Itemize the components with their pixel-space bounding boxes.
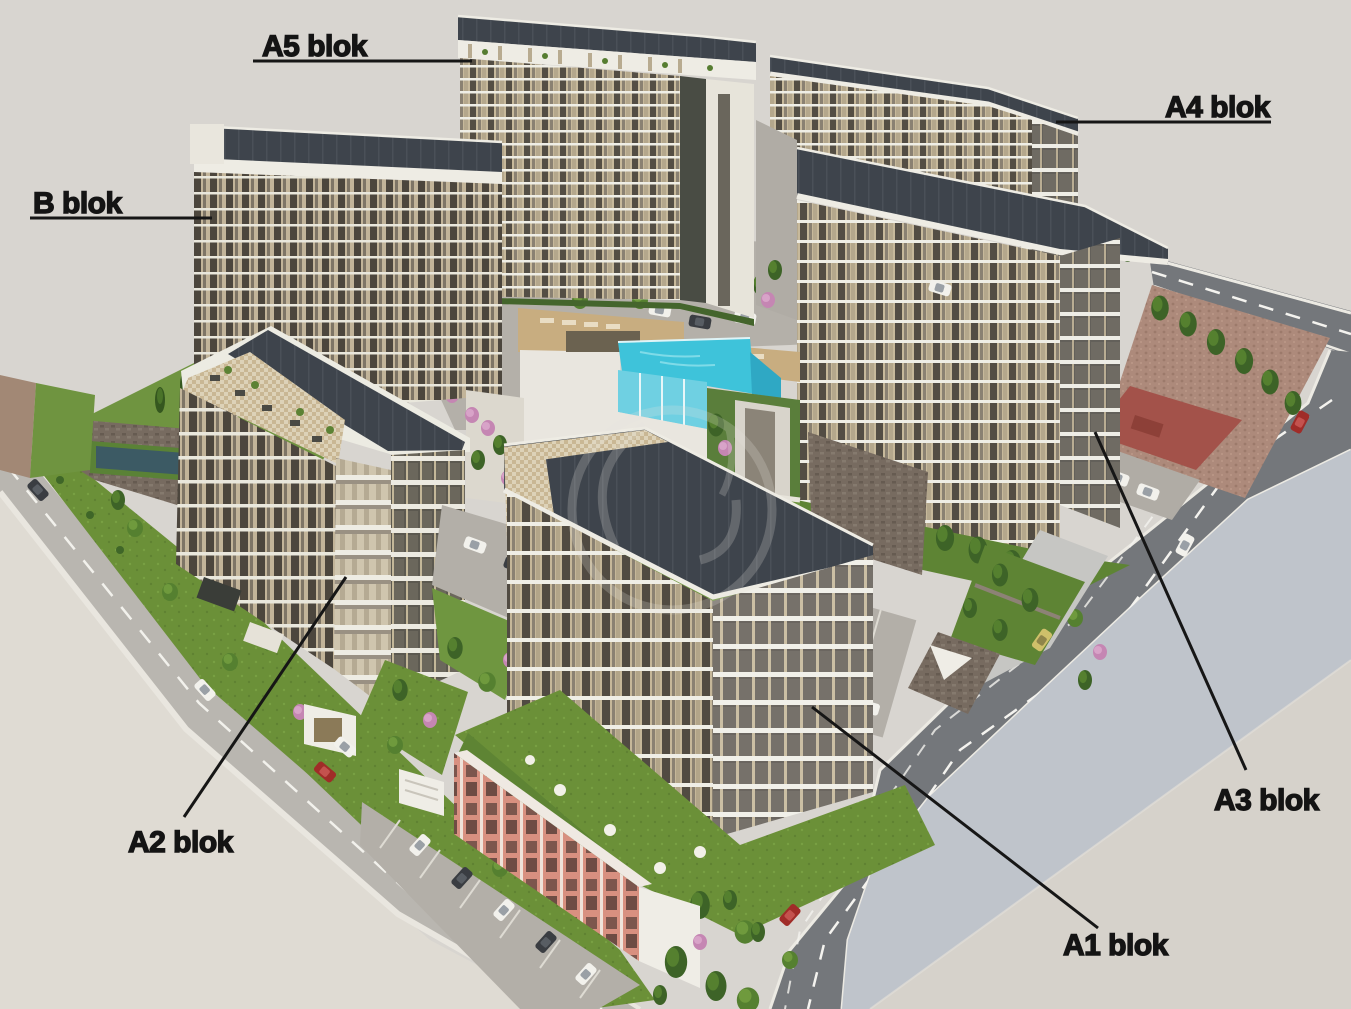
svg-text:B blok: B blok	[33, 187, 122, 220]
svg-text:A3 blok: A3 blok	[1214, 784, 1320, 817]
svg-text:A4 blok: A4 blok	[1165, 91, 1271, 124]
svg-text:A2 blok: A2 blok	[128, 826, 234, 859]
svg-text:A1 blok: A1 blok	[1063, 929, 1169, 962]
svg-text:A5 blok: A5 blok	[262, 30, 368, 63]
